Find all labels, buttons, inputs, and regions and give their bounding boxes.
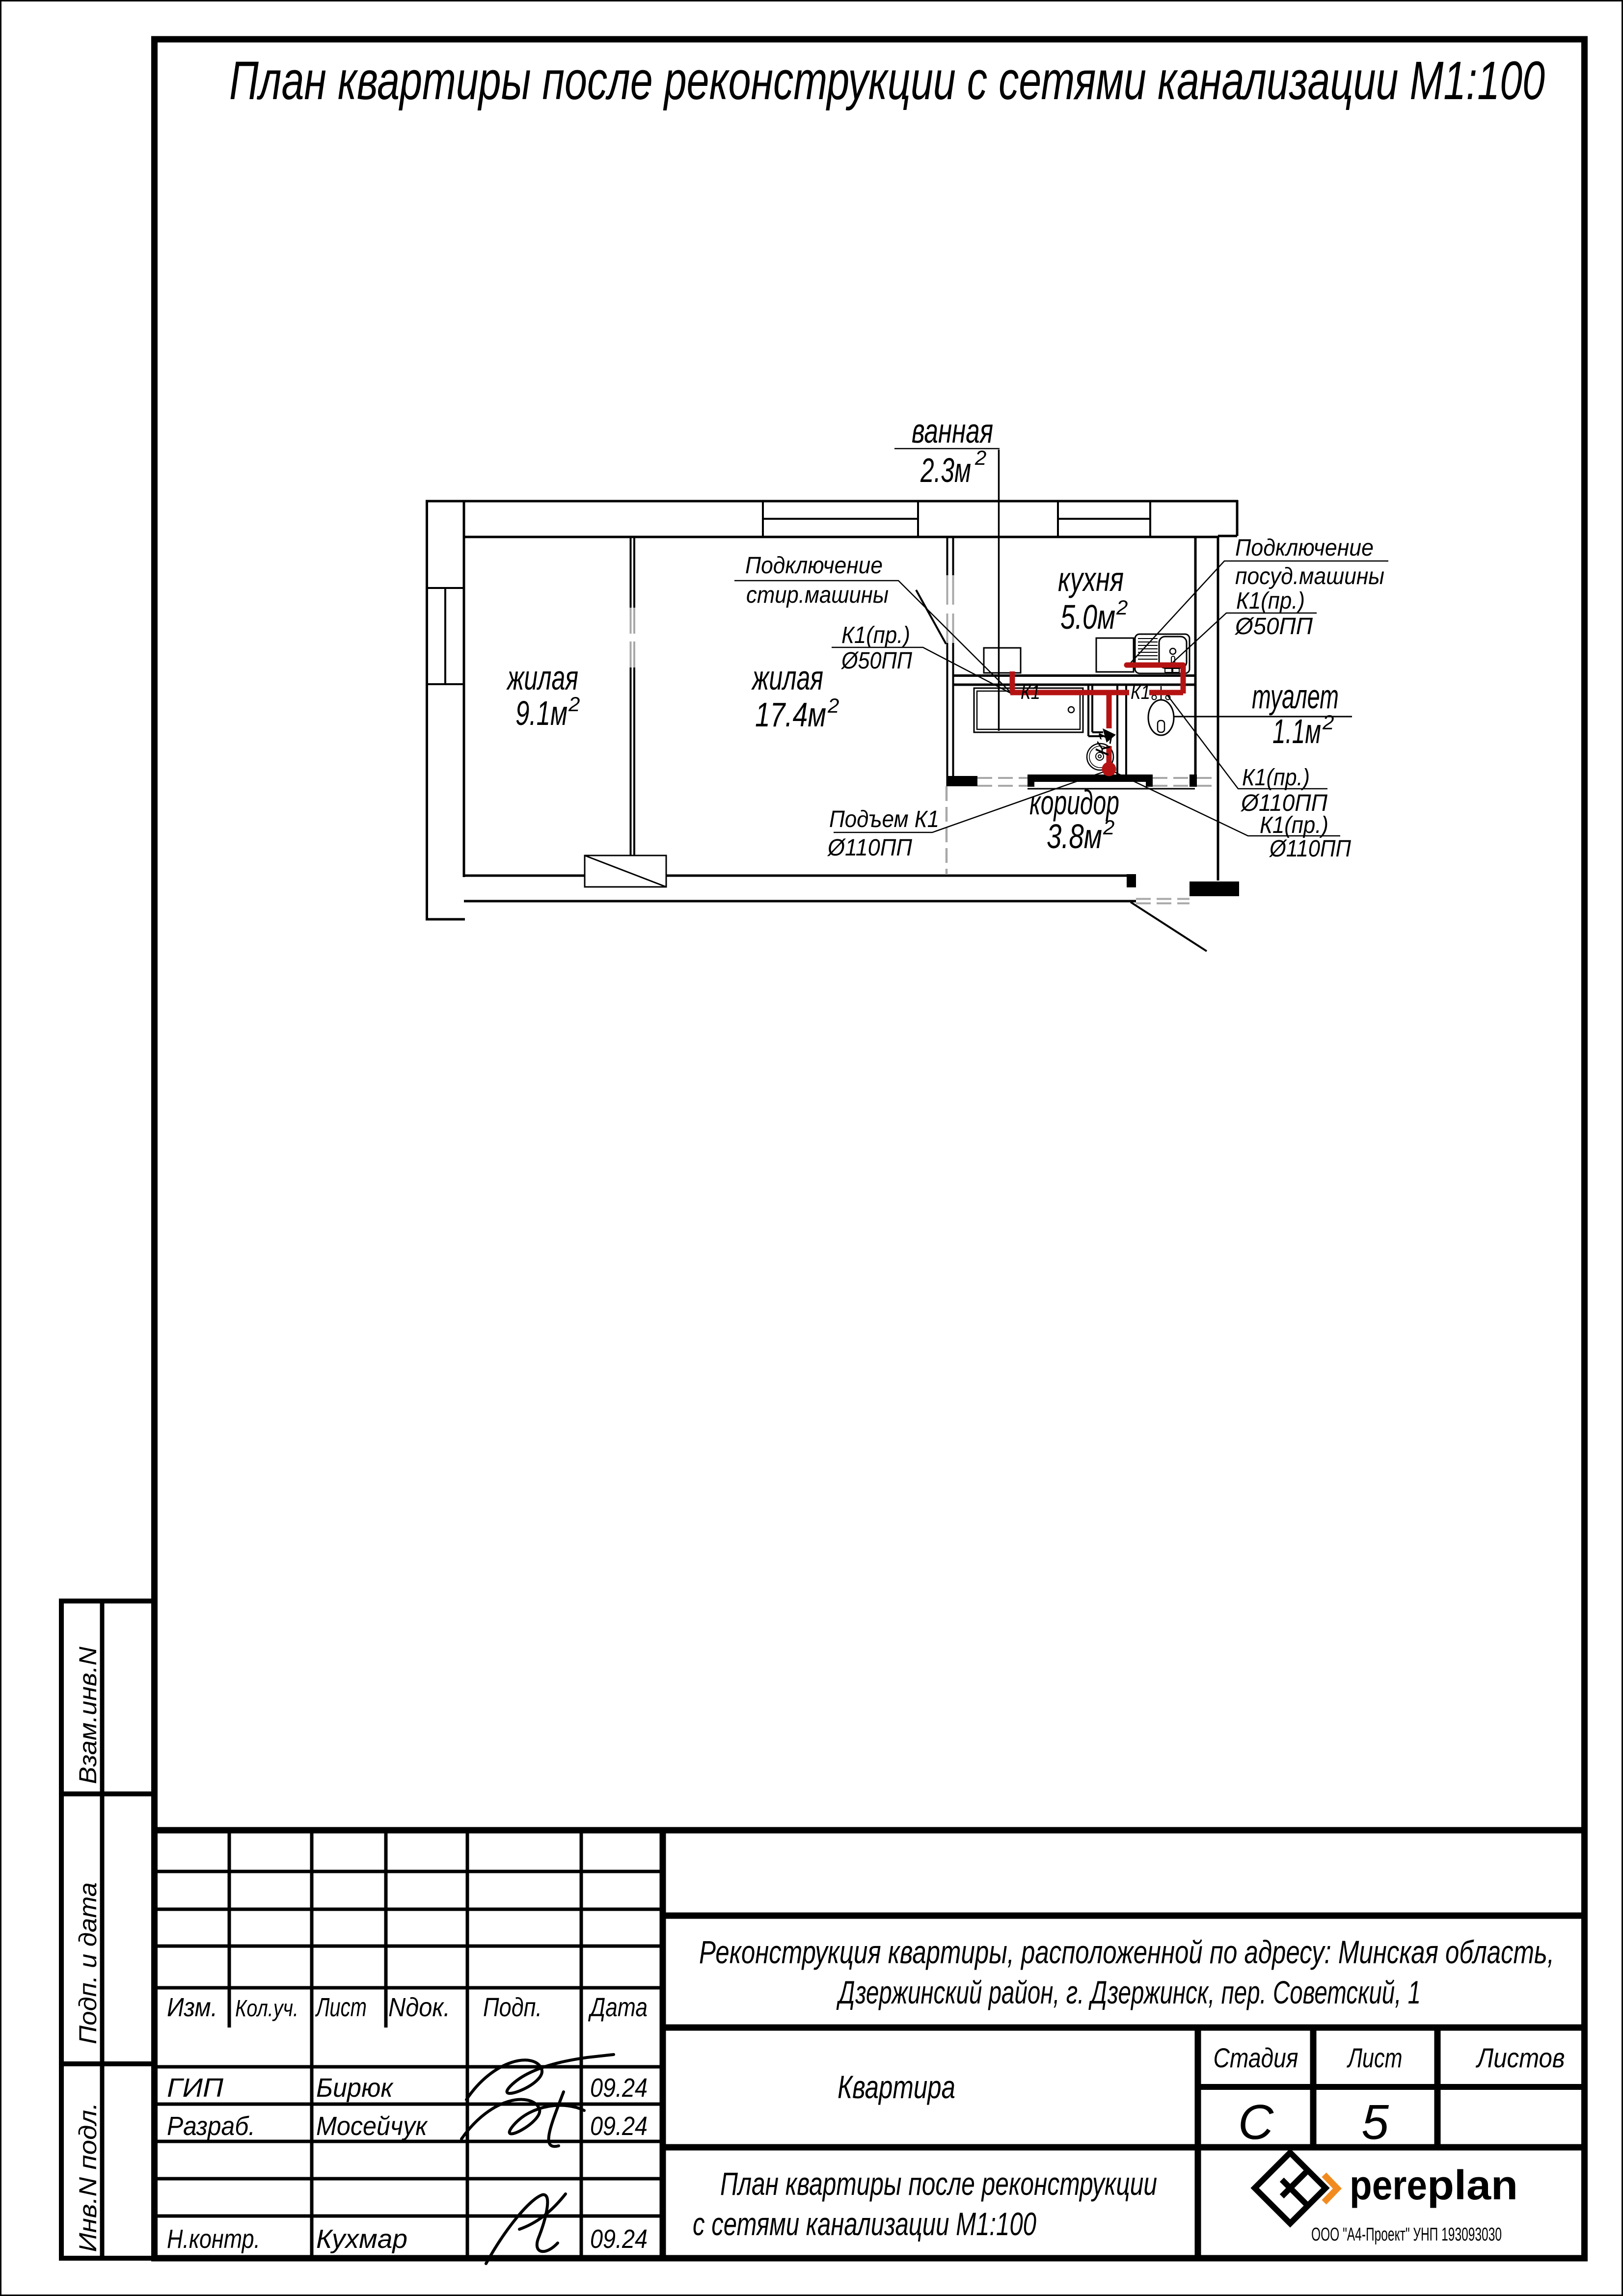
svg-text:2: 2 bbox=[1103, 816, 1114, 839]
svg-text:Разраб.: Разраб. bbox=[167, 2111, 255, 2141]
svg-text:5.0м: 5.0м bbox=[1060, 598, 1115, 636]
svg-text:К1: К1 bbox=[1131, 682, 1150, 703]
svg-text:5: 5 bbox=[1361, 2095, 1389, 2150]
svg-text:2: 2 bbox=[1322, 711, 1334, 734]
svg-text:ГИП: ГИП bbox=[167, 2073, 224, 2103]
svg-text:ООО "А4-Проект" УНП 193093030: ООО "А4-Проект" УНП 193093030 bbox=[1311, 2224, 1502, 2245]
svg-text:жилая: жилая bbox=[506, 659, 578, 697]
svg-text:жилая: жилая bbox=[751, 659, 823, 697]
svg-text:2: 2 bbox=[568, 693, 580, 716]
svg-text:3.8м: 3.8м bbox=[1047, 817, 1102, 855]
svg-text:кухня: кухня bbox=[1058, 560, 1124, 598]
svg-text:Ø50ПП: Ø50ПП bbox=[840, 648, 912, 674]
svg-text:Подп.: Подп. bbox=[483, 1993, 542, 2022]
svg-text:Изм.: Изм. bbox=[167, 1993, 217, 2022]
svg-text:Мосейчук: Мосейчук bbox=[316, 2111, 428, 2141]
svg-text:Кол.уч.: Кол.уч. bbox=[235, 1996, 298, 2022]
svg-text:с сетями канализации М1:100: с сетями канализации М1:100 bbox=[693, 2206, 1036, 2242]
svg-text:Подп. и дата: Подп. и дата bbox=[74, 1882, 102, 2044]
svg-text:К1(пр.): К1(пр.) bbox=[841, 622, 910, 648]
svg-text:09.24: 09.24 bbox=[590, 2111, 648, 2141]
svg-text:9.1м: 9.1м bbox=[515, 694, 568, 732]
svg-text:Квартира: Квартира bbox=[838, 2069, 955, 2105]
svg-text:Дзержинский район, г. Дзержинс: Дзержинский район, г. Дзержинск, пер. Со… bbox=[836, 1974, 1421, 2010]
svg-text:09.24: 09.24 bbox=[590, 2224, 648, 2254]
svg-text:Дата: Дата bbox=[588, 1993, 648, 2022]
svg-text:Nдок.: Nдок. bbox=[388, 1993, 450, 2022]
svg-text:Взам.инв.N: Взам.инв.N bbox=[74, 1646, 102, 1784]
svg-text:План квартиры после реконстру: План квартиры после реконструкции с сетя… bbox=[229, 51, 1545, 111]
svg-text:ванная: ванная bbox=[912, 412, 993, 450]
svg-text:Подъем К1: Подъем К1 bbox=[829, 806, 939, 832]
svg-text:Лист: Лист bbox=[1347, 2042, 1402, 2073]
svg-text:посуд.машины: посуд.машины bbox=[1235, 563, 1384, 589]
svg-text:Подключение: Подключение bbox=[745, 553, 883, 579]
svg-text:2: 2 bbox=[974, 446, 986, 469]
svg-text:Стадия: Стадия bbox=[1214, 2042, 1298, 2073]
svg-text:Ø50ПП: Ø50ПП bbox=[1234, 614, 1313, 640]
svg-text:С: С bbox=[1238, 2095, 1274, 2150]
svg-text:2: 2 bbox=[1116, 596, 1128, 619]
svg-text:2: 2 bbox=[827, 694, 839, 717]
svg-text:Листов: Листов bbox=[1476, 2042, 1565, 2073]
svg-text:К1(пр.): К1(пр.) bbox=[1242, 765, 1310, 791]
svg-text:Лист: Лист bbox=[315, 1993, 367, 2022]
svg-text:plan: plan bbox=[1427, 2162, 1518, 2208]
svg-text:стир.машины: стир.машины bbox=[746, 582, 889, 608]
svg-text:09.24: 09.24 bbox=[590, 2073, 648, 2103]
svg-text:Н.контр.: Н.контр. bbox=[167, 2224, 260, 2254]
svg-text:1.1м: 1.1м bbox=[1272, 712, 1321, 750]
svg-text:К1(пр.): К1(пр.) bbox=[1236, 588, 1305, 614]
svg-text:17.4м: 17.4м bbox=[755, 695, 826, 734]
svg-text:2.3м: 2.3м bbox=[920, 451, 971, 489]
svg-text:К1(пр.): К1(пр.) bbox=[1260, 812, 1328, 838]
svg-text:туалет: туалет bbox=[1252, 677, 1339, 716]
svg-text:pere: pere bbox=[1350, 2162, 1427, 2208]
svg-text:Ø110ПП: Ø110ПП bbox=[1269, 836, 1351, 862]
svg-text:Подключение: Подключение bbox=[1235, 535, 1374, 561]
svg-text:Ø110ПП: Ø110ПП bbox=[827, 835, 912, 861]
svg-text:План квартиры после реконстру: План квартиры после реконструкции bbox=[720, 2165, 1157, 2202]
svg-text:Инв.N подл.: Инв.N подл. bbox=[74, 2103, 102, 2252]
svg-text:Реконструкция квартиры, распол: Реконструкция квартиры, расположенной по… bbox=[699, 1934, 1554, 1970]
svg-text:Кухмар: Кухмар bbox=[316, 2224, 407, 2254]
svg-text:К1: К1 bbox=[1021, 682, 1040, 703]
svg-text:Бирюк: Бирюк bbox=[316, 2073, 394, 2103]
